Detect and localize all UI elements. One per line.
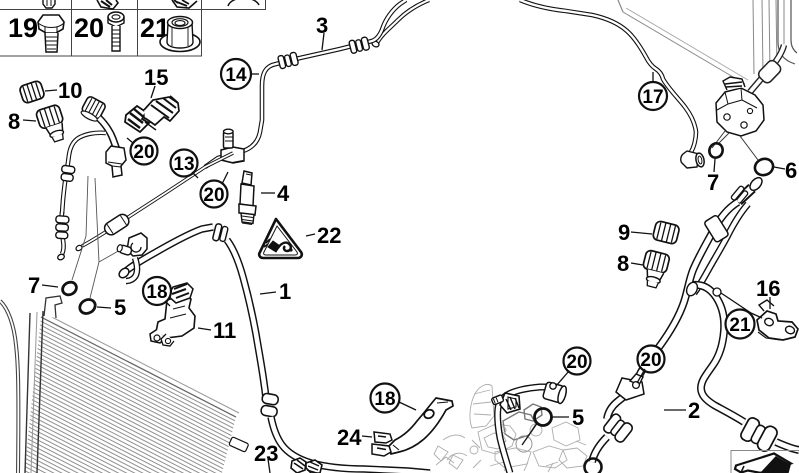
svg-text:2: 2 bbox=[688, 398, 700, 423]
svg-text:4: 4 bbox=[277, 181, 290, 206]
svg-text:8: 8 bbox=[8, 109, 20, 134]
svg-text:22: 22 bbox=[317, 223, 341, 248]
svg-text:6: 6 bbox=[785, 158, 797, 183]
svg-text:20: 20 bbox=[133, 142, 154, 163]
svg-text:20: 20 bbox=[203, 185, 224, 206]
svg-text:21: 21 bbox=[729, 315, 751, 336]
svg-text:18: 18 bbox=[374, 389, 395, 410]
svg-text:14: 14 bbox=[225, 65, 247, 86]
svg-text:8: 8 bbox=[617, 251, 629, 276]
svg-text:18: 18 bbox=[146, 282, 167, 303]
svg-text:24: 24 bbox=[337, 425, 362, 450]
svg-text:17: 17 bbox=[642, 87, 663, 108]
svg-text:20: 20 bbox=[74, 13, 104, 43]
svg-text:23: 23 bbox=[254, 441, 278, 466]
svg-text:15: 15 bbox=[144, 65, 168, 90]
svg-text:3: 3 bbox=[316, 13, 328, 38]
svg-text:13: 13 bbox=[173, 154, 194, 175]
svg-text:20: 20 bbox=[566, 352, 587, 373]
svg-text:10: 10 bbox=[58, 78, 82, 103]
svg-text:19: 19 bbox=[8, 13, 38, 43]
svg-text:1: 1 bbox=[279, 279, 291, 304]
svg-text:5: 5 bbox=[572, 405, 584, 430]
svg-text:20: 20 bbox=[640, 350, 661, 371]
svg-text:7: 7 bbox=[28, 273, 40, 298]
svg-text:16: 16 bbox=[756, 276, 780, 301]
svg-text:9: 9 bbox=[618, 220, 630, 245]
svg-text:11: 11 bbox=[213, 318, 236, 343]
svg-text:7: 7 bbox=[707, 170, 719, 195]
svg-text:5: 5 bbox=[114, 295, 126, 320]
